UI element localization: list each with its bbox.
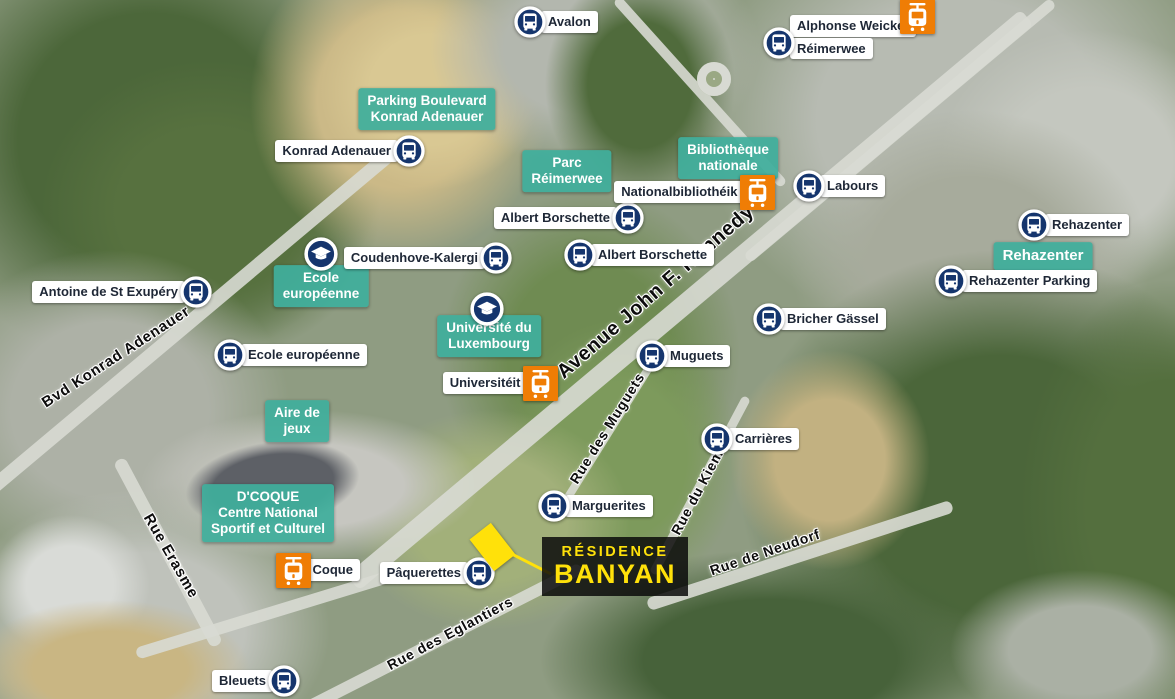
stop-label: Rehazenter Parking — [962, 270, 1097, 292]
tram-marker[interactable] — [900, 0, 935, 34]
stop-labours[interactable]: Labours — [793, 170, 885, 202]
stop-coque[interactable]: Coque — [276, 553, 360, 588]
place-label-parc: Parc Réimerwee — [522, 150, 611, 192]
stop-marguerites[interactable]: Marguerites — [538, 490, 653, 522]
bus-icon — [793, 170, 825, 202]
stop-alphonse-weicker[interactable]: Alphonse WeickerRéimerwee — [763, 21, 916, 65]
bus-icon — [538, 490, 570, 522]
place-label-d-coque: D'COQUE Centre National Sportif et Cultu… — [202, 484, 334, 542]
stop-rehazenter-parking[interactable]: Rehazenter Parking — [935, 265, 1097, 297]
stop-label: Carrières — [728, 428, 799, 450]
stop-label: Pâquerettes — [380, 562, 468, 584]
stop-label: Konrad Adenauer — [275, 140, 398, 162]
tram-icon — [523, 366, 558, 401]
bus-icon — [1018, 209, 1050, 241]
stop-antoine-de-st-exupery[interactable]: Antoine de St Exupéry — [32, 276, 212, 308]
stop-paquerettes[interactable]: Pâquerettes — [380, 557, 495, 589]
school-marker[interactable] — [470, 292, 504, 326]
place-label-bibliotheque: Bibliothèque nationale — [678, 137, 778, 179]
bus-icon — [514, 6, 546, 38]
stop-albert-borschette[interactable]: Albert Borschette — [564, 239, 714, 271]
bus-icon — [763, 27, 795, 59]
bus-icon — [564, 239, 596, 271]
stop-label-group: Alphonse WeickerRéimerwee — [795, 15, 916, 59]
stop-label: Muguets — [663, 345, 730, 367]
stop-bricher-gassel[interactable]: Bricher Gässel — [753, 303, 886, 335]
stop-rehazenter[interactable]: Rehazenter — [1018, 209, 1129, 241]
school-icon — [470, 292, 504, 326]
stop-label: Universitéit — [443, 372, 528, 394]
stop-label: Avalon — [541, 11, 598, 33]
bus-icon — [636, 340, 668, 372]
stop-label: Réimerwee — [790, 38, 873, 60]
stop-coudenhove-kalergi[interactable]: Coudenhove-Kalergi — [344, 242, 512, 274]
bus-icon — [393, 135, 425, 167]
site-name-line1: RÉSIDENCE — [554, 544, 676, 560]
stop-bleuets[interactable]: Bleuets — [212, 665, 300, 697]
stop-avalon[interactable]: Avalon — [514, 6, 598, 38]
stop-label: Rehazenter — [1045, 214, 1129, 236]
school-marker[interactable] — [304, 237, 338, 271]
stop-label: Alphonse Weicker — [790, 15, 916, 37]
stop-label: Bleuets — [212, 670, 273, 692]
stop-nationalbibliotheik[interactable]: Nationalbibliothéik — [614, 175, 774, 210]
bus-icon — [753, 303, 785, 335]
stop-muguets[interactable]: Muguets — [636, 340, 730, 372]
stop-label: Antoine de St Exupéry — [32, 281, 185, 303]
site-name-line2: BANYAN — [554, 560, 676, 588]
tram-icon — [740, 175, 775, 210]
stop-label: Ecole européenne — [241, 344, 367, 366]
stop-carrieres[interactable]: Carrières — [701, 423, 799, 455]
map-canvas[interactable]: Avenue John F. KennedyBvd Konrad Adenaue… — [0, 0, 1175, 699]
place-label-parking-boulevard: Parking Boulevard Konrad Adenauer — [358, 88, 495, 130]
bus-icon — [214, 339, 246, 371]
stop-label: Labours — [820, 175, 885, 197]
bus-icon — [701, 423, 733, 455]
tram-icon — [276, 553, 311, 588]
stop-label: Coudenhove-Kalergi — [344, 247, 485, 269]
stop-label: Albert Borschette — [494, 207, 617, 229]
place-label-aire-de: Aire de jeux — [265, 400, 329, 442]
site-name-label: RÉSIDENCE BANYAN — [542, 537, 688, 596]
stop-label: Marguerites — [565, 495, 653, 517]
school-icon — [304, 237, 338, 271]
bus-icon — [480, 242, 512, 274]
stop-label: Bricher Gässel — [780, 308, 886, 330]
tram-icon — [900, 0, 935, 34]
stop-label: Albert Borschette — [591, 244, 714, 266]
stop-konrad-adenauer[interactable]: Konrad Adenauer — [275, 135, 425, 167]
bus-icon — [268, 665, 300, 697]
stop-label: Nationalbibliothéik — [614, 181, 744, 203]
stop-label: Coque — [306, 559, 360, 581]
bus-icon — [935, 265, 967, 297]
stop-ecole-europeenne[interactable]: Ecole européenne — [214, 339, 367, 371]
bus-icon — [180, 276, 212, 308]
stop-universiteit[interactable]: Universitéit — [443, 366, 558, 401]
